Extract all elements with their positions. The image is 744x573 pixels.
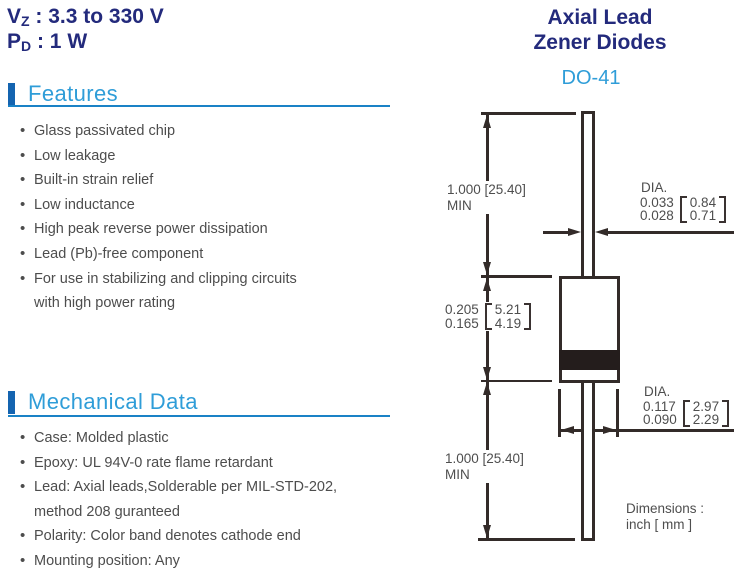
body-dia-label: DIA. 0.117 0.090 2.97 2.29	[640, 383, 733, 428]
vz-symbol: V	[7, 5, 21, 28]
vz-subscript: Z	[21, 13, 30, 29]
arrowhead-down-icon	[483, 262, 491, 275]
pd-subscript: D	[21, 38, 31, 54]
ext-line-lead-bottom	[478, 538, 575, 541]
lead-dia-pointer-left	[543, 231, 571, 234]
feature-item: High peak reverse power dissipation	[21, 217, 416, 242]
cathode-band	[559, 350, 620, 371]
feature-item: Built-in strain relief	[21, 168, 416, 193]
title-line1: Axial Lead	[470, 5, 730, 30]
top-lead-length-label: 1.000 [25.40] MIN	[445, 181, 528, 214]
feature-item-continuation: with high power rating	[34, 295, 175, 311]
mechanical-list: Case: Molded plastic Epoxy: UL 94V-0 rat…	[21, 426, 416, 573]
ext-line-body-top	[481, 275, 552, 278]
diode-lead-bottom	[581, 383, 595, 541]
lead-dia-label: DIA. 0.033 0.028 0.84 0.71	[637, 179, 730, 224]
bracket-open-icon	[680, 196, 687, 223]
title-line2: Zener Diodes	[470, 30, 730, 55]
bracket-open-icon	[485, 303, 492, 330]
feature-item: Lead (Pb)-free component	[21, 242, 416, 267]
pd-symbol: P	[7, 30, 21, 53]
diode-lead-top	[581, 111, 595, 277]
lead-dia-pointer-right	[608, 231, 734, 234]
package-name: DO-41	[480, 67, 702, 90]
ext-line-body-bottom	[481, 380, 552, 383]
arrowhead-right-icon	[568, 228, 581, 236]
ext-line-lead-top	[481, 112, 576, 115]
mechanical-underline	[8, 415, 390, 418]
mechanical-item: Lead: Axial leads,Solderable per MIL-STD…	[21, 475, 416, 524]
features-underline	[8, 105, 390, 108]
mechanical-item: Case: Molded plastic	[21, 426, 416, 451]
mechanical-item: Mounting position: Any	[21, 549, 416, 573]
arrowhead-left-icon	[561, 426, 574, 434]
pd-value: : 1 W	[31, 30, 87, 53]
arrowhead-down-icon	[483, 525, 491, 538]
arrowhead-left-icon	[595, 228, 608, 236]
datasheet-page: VZ : 3.3 to 330 V PD : 1 W Axial Lead Ze…	[0, 0, 744, 573]
bracket-close-icon	[722, 400, 729, 427]
mechanical-item: Polarity: Color band denotes cathode end	[21, 524, 416, 549]
body-length-label: 0.205 0.165 5.21 4.19	[442, 302, 535, 331]
mechanical-item-continuation: method 208 guranteed	[34, 504, 180, 520]
arrowhead-right-icon	[603, 426, 616, 434]
mechanical-accent-bar	[8, 391, 15, 414]
features-list: Glass passivated chip Low leakage Built-…	[21, 119, 416, 316]
bracket-close-icon	[719, 196, 726, 223]
mechanical-item: Epoxy: UL 94V-0 rate flame retardant	[21, 451, 416, 476]
features-accent-bar	[8, 83, 15, 106]
bracket-close-icon	[524, 303, 531, 330]
arrowhead-up-icon	[483, 382, 491, 395]
bottom-lead-length-label: 1.000 [25.40] MIN	[443, 450, 526, 483]
feature-item: Low inductance	[21, 193, 416, 218]
bracket-open-icon	[683, 400, 690, 427]
arrowhead-up-icon	[483, 115, 491, 128]
feature-item: For use in stabilizing and clipping circ…	[21, 267, 416, 316]
arrowhead-up-icon	[483, 278, 491, 291]
pd-spec: PD : 1 W	[7, 30, 87, 54]
vz-spec: VZ : 3.3 to 330 V	[7, 5, 164, 29]
arrowhead-down-icon	[483, 367, 491, 380]
page-title: Axial Lead Zener Diodes	[470, 5, 730, 55]
feature-item: Glass passivated chip	[21, 119, 416, 144]
vz-value: : 3.3 to 330 V	[30, 5, 164, 28]
mechanical-heading: Mechanical Data	[28, 389, 198, 415]
feature-item: Low leakage	[21, 144, 416, 169]
features-heading: Features	[28, 81, 118, 107]
dimensions-note: Dimensions : inch [ mm ]	[624, 500, 706, 534]
